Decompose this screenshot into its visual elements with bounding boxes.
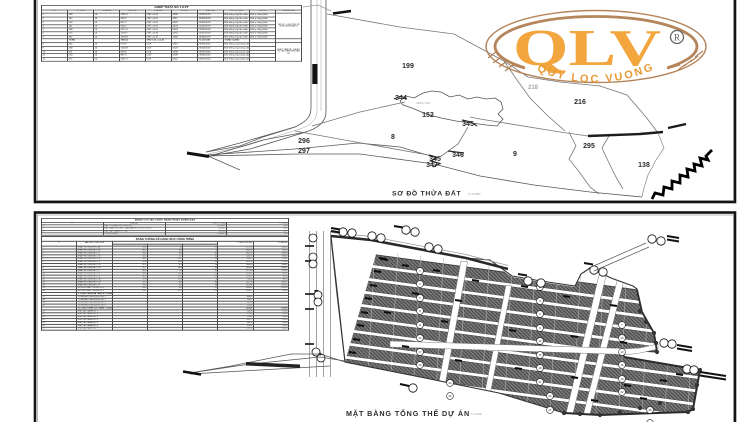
svg-text:SƠ ĐỒ THỬA ĐẤT: SƠ ĐỒ THỬA ĐẤT — [392, 188, 461, 198]
svg-text:9: 9 — [513, 151, 517, 158]
svg-text:138: 138 — [638, 162, 650, 169]
svg-text:296: 296 — [298, 138, 310, 145]
svg-text:R: R — [674, 33, 680, 43]
svg-text:MẶT BẰNG TỔNG THỂ DỰ ÁN: MẶT BẰNG TỔNG THỂ DỰ ÁN — [346, 409, 470, 418]
svg-text:297: 297 — [298, 148, 310, 155]
svg-text:344: 344 — [395, 95, 407, 102]
svg-text:8: 8 — [391, 134, 395, 141]
svg-text:346: 346 — [452, 152, 464, 159]
svg-text:TL 1/500: TL 1/500 — [471, 412, 482, 416]
svg-text:347: 347 — [426, 162, 438, 169]
svg-text:TL 1/2000: TL 1/2000 — [468, 192, 481, 196]
svg-text:V.Banh Thén: V.Banh Thén — [416, 101, 431, 105]
svg-text:216: 216 — [574, 99, 586, 106]
svg-text:345: 345 — [462, 121, 474, 128]
svg-text:295: 295 — [583, 143, 595, 150]
svg-text:218: 218 — [528, 85, 539, 91]
svg-text:152: 152 — [422, 112, 434, 119]
svg-text:199: 199 — [402, 63, 414, 70]
